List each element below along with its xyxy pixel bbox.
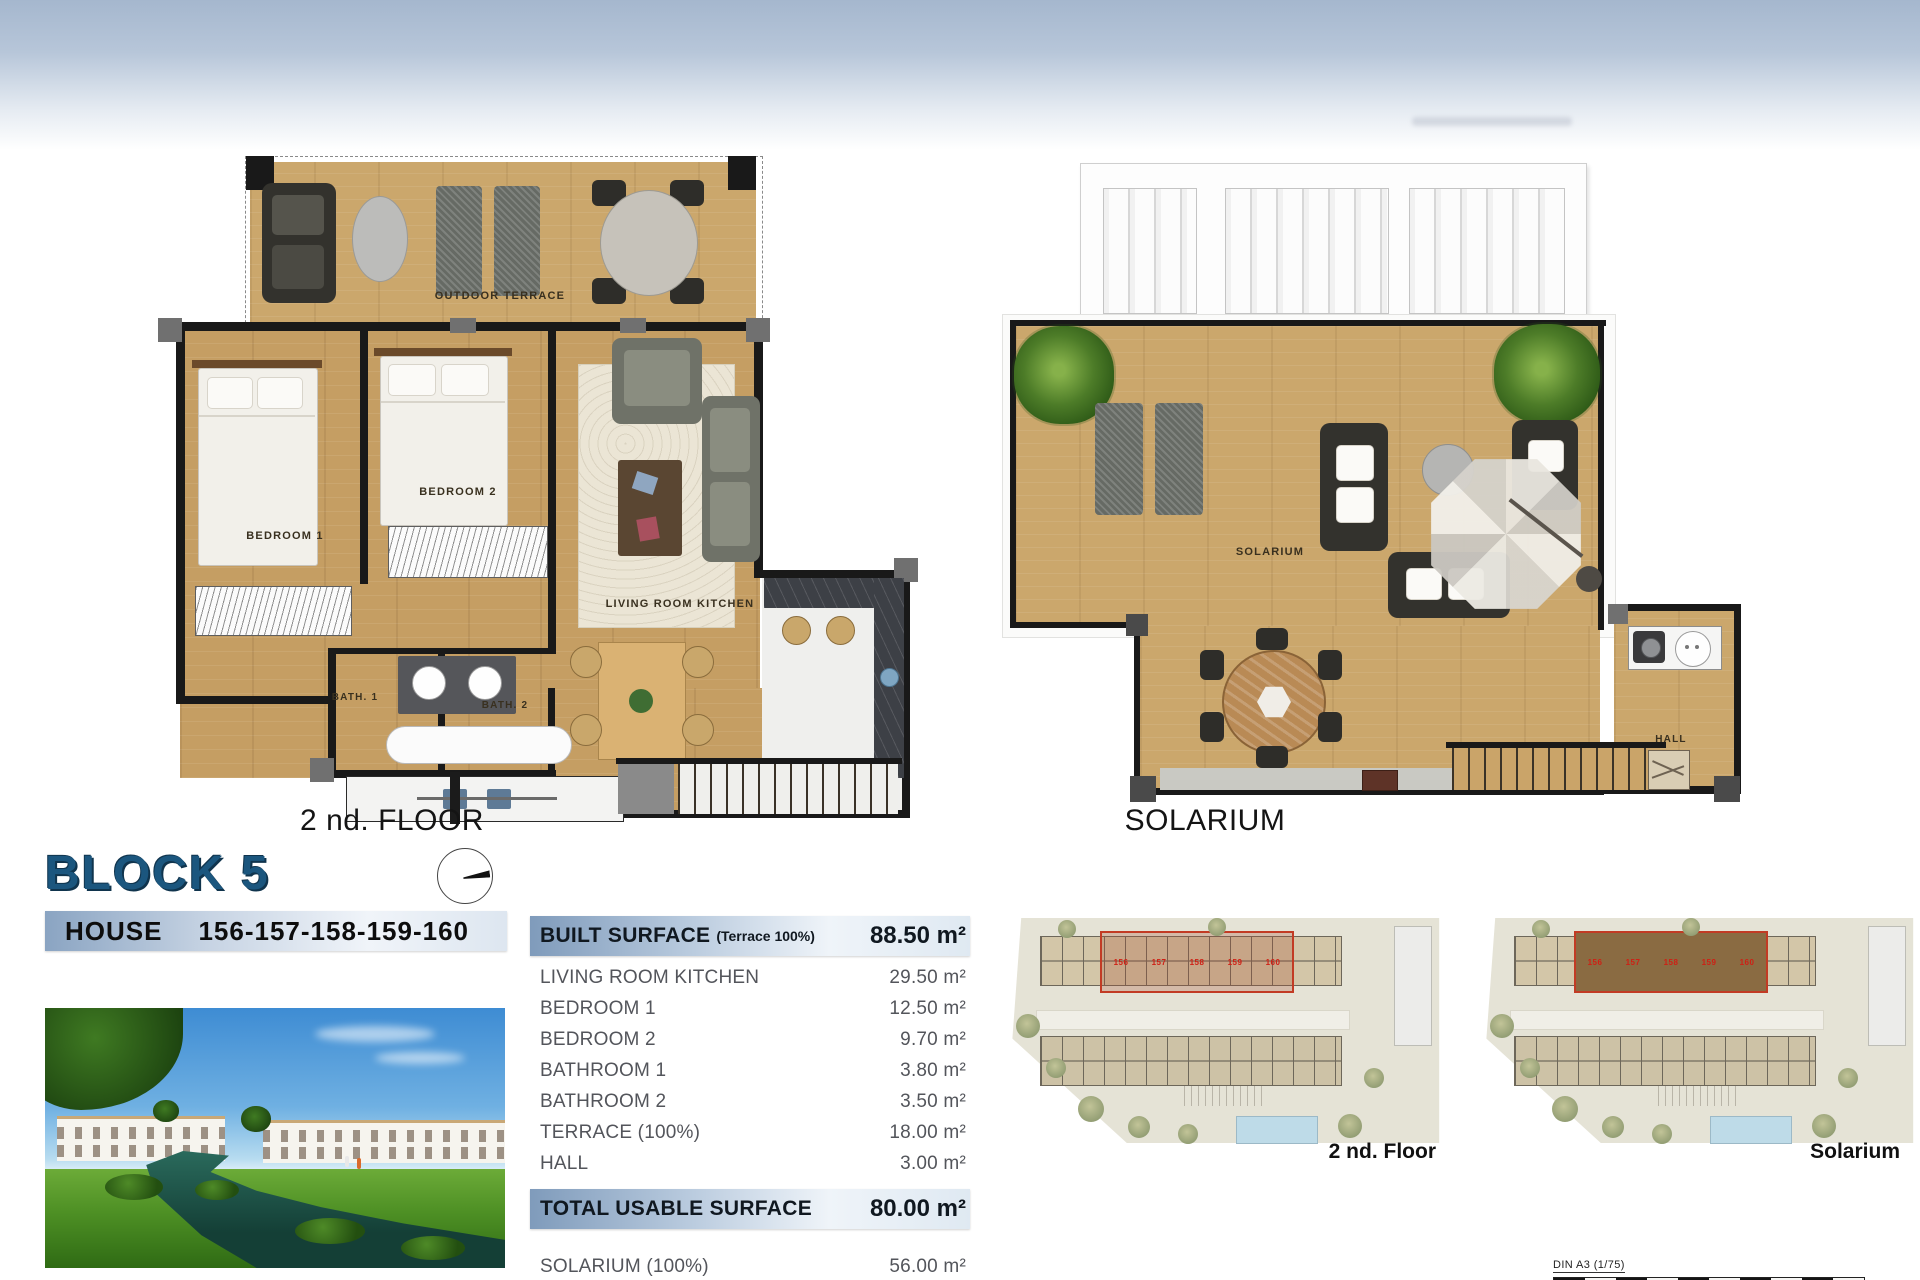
dining-chair	[1318, 712, 1342, 742]
outdoor-sofa	[1320, 423, 1388, 551]
wall-segment	[176, 322, 185, 704]
wall-segment	[1734, 604, 1741, 794]
plan-caption-2nd-floor: 2 nd. FLOOR	[282, 804, 502, 838]
coffee-table	[618, 460, 682, 556]
table-row: BATHROOM 2 3.50 m²	[530, 1086, 970, 1117]
room-label-bath1: BATH. 1	[300, 692, 410, 703]
unit-number: 156	[1114, 958, 1129, 967]
headboard	[192, 360, 322, 368]
row-label: SOLARIUM (100%)	[540, 1256, 709, 1278]
wall-post	[1130, 776, 1156, 802]
sun-lounger	[1095, 403, 1143, 515]
wall-post	[158, 318, 182, 342]
sun-lounger	[1155, 403, 1203, 515]
built-surface-header: BUILT SURFACE (Terrace 100%) 88.50 m²	[530, 916, 970, 956]
headboard	[374, 348, 512, 356]
dining-chair	[1200, 650, 1224, 680]
wall-post	[620, 318, 646, 333]
site-caption-solarium: Solarium	[1790, 1140, 1900, 1164]
pergola-slats	[1103, 188, 1197, 314]
kitchenette-counter	[1628, 626, 1722, 670]
total-surface-value: 80.00 m²	[870, 1195, 966, 1223]
umbrella-base	[1576, 566, 1602, 592]
unit-number: 157	[1152, 958, 1167, 967]
stairs	[1452, 748, 1660, 790]
row-label: BEDROOM 2	[540, 1029, 656, 1051]
unit-number: 159	[1228, 958, 1243, 967]
plant	[1494, 324, 1600, 424]
row-value: 12.50 m²	[889, 998, 966, 1020]
wardrobe	[388, 526, 548, 578]
room-label-bedroom1: BEDROOM 1	[205, 530, 365, 542]
bathtub	[386, 726, 572, 764]
wall-post	[450, 318, 476, 333]
site-building-row	[1514, 1036, 1816, 1086]
table-row-solarium: SOLARIUM (100%) 56.00 m²	[530, 1251, 970, 1280]
stairs	[678, 764, 898, 814]
row-value: 18.00 m²	[889, 1122, 966, 1144]
scale-label: DIN A3 (1/75)	[1553, 1259, 1625, 1273]
site-pool	[1710, 1116, 1792, 1144]
wall-segment	[336, 648, 556, 654]
pergola-slats	[1225, 188, 1389, 314]
row-label: HALL	[540, 1153, 588, 1175]
faded-watermark	[1412, 117, 1572, 126]
doormat	[1362, 770, 1398, 791]
table-row: TERRACE (100%) 18.00 m²	[530, 1117, 970, 1148]
room-label-bedroom2: BEDROOM 2	[378, 486, 538, 498]
dining-chair	[1256, 628, 1288, 650]
room-label-bath2: BATH. 2	[450, 700, 560, 711]
dining-chair	[570, 646, 602, 678]
unit-number: 159	[1702, 958, 1717, 967]
unit-number: 160	[1266, 958, 1281, 967]
site-plan-2nd-floor: 156 157 158 159 160	[1008, 918, 1448, 1150]
house-band: HOUSE 156-157-158-159-160	[45, 911, 507, 951]
wall-segment	[548, 322, 556, 652]
row-value: 3.00 m²	[900, 1153, 966, 1175]
row-value: 56.00 m²	[889, 1256, 966, 1278]
dining-chair	[682, 646, 714, 678]
dining-table	[598, 642, 686, 760]
highlighted-units: 156 157 158 159 160	[1100, 931, 1294, 993]
terrace-table-oval	[352, 196, 408, 282]
terrace-sofa	[262, 183, 336, 303]
room-label-living: LIVING ROOM KITCHEN	[570, 598, 790, 610]
photo-person	[357, 1158, 361, 1169]
wall-segment	[1134, 622, 1140, 794]
site-parking	[1184, 1086, 1268, 1106]
site-road	[1510, 1010, 1824, 1030]
stair-landing	[618, 764, 674, 814]
table-row: BEDROOM 2 9.70 m²	[530, 1024, 970, 1055]
unit-number: 158	[1664, 958, 1679, 967]
site-building-row	[1040, 1036, 1342, 1086]
stair-turn	[1648, 750, 1690, 790]
unit-number: 157	[1626, 958, 1641, 967]
site-road	[1036, 1010, 1350, 1030]
pergola	[1080, 163, 1587, 327]
photo-foreground-tree	[45, 1008, 183, 1110]
wardrobe	[195, 586, 352, 636]
compass-needle	[463, 870, 491, 880]
resort-photo	[45, 1008, 505, 1268]
wall-post	[310, 758, 334, 782]
room-label-outdoor-terrace: OUTDOOR TERRACE	[400, 290, 600, 302]
plan-caption-solarium: SOLARIUM	[1095, 804, 1315, 838]
total-surface-header: TOTAL USABLE SURFACE 80.00 m²	[530, 1189, 970, 1229]
site-pool	[1236, 1116, 1318, 1144]
photo-building	[263, 1120, 505, 1163]
row-value: 9.70 m²	[900, 1029, 966, 1051]
row-label: BATHROOM 2	[540, 1091, 666, 1113]
armchair	[612, 338, 702, 424]
wall-segment	[1446, 742, 1666, 748]
dining-chair	[1318, 650, 1342, 680]
house-numbers: 156-157-158-159-160	[198, 916, 469, 947]
dining-chair	[570, 714, 602, 746]
highlighted-units: 156 157 158 159 160	[1574, 931, 1768, 993]
unit-number: 158	[1190, 958, 1205, 967]
built-surface-note: (Terrace 100%)	[716, 928, 815, 944]
site-side-building	[1394, 926, 1432, 1046]
row-label: BATHROOM 1	[540, 1060, 666, 1082]
room-label-solarium: SOLARIUM	[1195, 546, 1345, 558]
floorplan-solarium: SOLARIUM HALL	[1000, 128, 1760, 823]
dining-chair	[1256, 746, 1288, 768]
pergola-slats	[1409, 188, 1565, 314]
wall-segment	[360, 322, 368, 584]
wall-post	[1608, 604, 1628, 624]
built-surface-label: BUILT SURFACE	[540, 924, 710, 948]
table-row: BEDROOM 1 12.50 m²	[530, 993, 970, 1024]
table-row: BATHROOM 1 3.80 m²	[530, 1055, 970, 1086]
page: OUTDOOR TERRACE BEDROOM 1	[0, 0, 1920, 1280]
built-surface-value: 88.50 m²	[870, 922, 966, 950]
row-value: 3.80 m²	[900, 1060, 966, 1082]
kitchen-stool	[782, 616, 811, 645]
table-row: HALL 3.00 m²	[530, 1148, 970, 1179]
dining-chair	[1200, 712, 1224, 742]
site-side-building	[1868, 926, 1906, 1046]
kitchen-stool	[826, 616, 855, 645]
table-row: LIVING ROOM KITCHEN 29.50 m²	[530, 962, 970, 993]
site-caption-2nd-floor: 2 nd. Floor	[1310, 1140, 1436, 1164]
dining-chair	[682, 714, 714, 746]
kitchen-sink	[880, 668, 899, 687]
block-title: BLOCK 5	[45, 846, 270, 901]
concrete-strip	[1160, 768, 1452, 790]
terrace-dining-table	[600, 190, 698, 296]
row-label: TERRACE (100%)	[540, 1122, 700, 1144]
floorplan-2nd-floor: OUTDOOR TERRACE BEDROOM 1	[150, 128, 940, 823]
house-label: HOUSE	[65, 916, 162, 947]
unit-number: 156	[1588, 958, 1603, 967]
wall-segment	[616, 758, 902, 764]
sun-lounger	[436, 186, 482, 296]
sun-lounger	[494, 186, 540, 296]
sofa	[702, 396, 760, 562]
row-value: 29.50 m²	[889, 967, 966, 989]
round-dining-table	[1222, 650, 1326, 754]
bed	[380, 356, 508, 526]
site-parking	[1658, 1086, 1742, 1106]
total-surface-label: TOTAL USABLE SURFACE	[540, 1197, 812, 1221]
wall-post	[746, 318, 770, 342]
row-value: 3.50 m²	[900, 1091, 966, 1113]
surface-table: BUILT SURFACE (Terrace 100%) 88.50 m² LI…	[530, 916, 970, 1280]
bath-sink	[468, 666, 502, 700]
unit-number: 160	[1740, 958, 1755, 967]
wall-segment	[754, 570, 910, 578]
site-plan-solarium: 156 157 158 159 160	[1482, 918, 1920, 1150]
bath-sink	[412, 666, 446, 700]
scale-bar: DIN A3 (1/75) 0 1 2 3 4 5	[1553, 1255, 1865, 1280]
wall-segment	[728, 156, 756, 190]
wall-post	[1714, 776, 1740, 802]
photo-person	[345, 1156, 349, 1167]
row-label: BEDROOM 1	[540, 998, 656, 1020]
row-label: LIVING ROOM KITCHEN	[540, 967, 759, 989]
wall-segment	[1010, 320, 1606, 326]
wall-post	[1126, 614, 1148, 636]
compass-icon	[437, 848, 493, 904]
wall-segment	[1010, 622, 1140, 628]
